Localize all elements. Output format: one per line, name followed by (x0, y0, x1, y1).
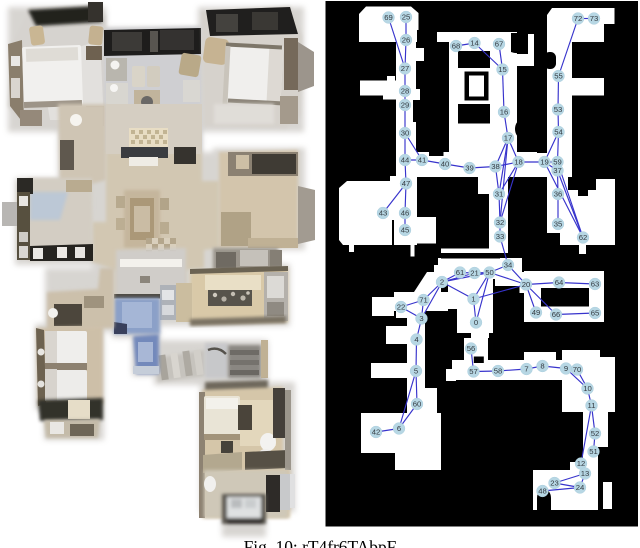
svg-text:1: 1 (471, 294, 475, 303)
svg-text:73: 73 (590, 14, 599, 23)
svg-text:46: 46 (401, 208, 410, 217)
svg-text:24: 24 (576, 483, 585, 492)
svg-text:4: 4 (414, 335, 419, 344)
svg-text:70: 70 (573, 365, 582, 374)
svg-text:60: 60 (413, 399, 422, 408)
svg-text:29: 29 (401, 100, 410, 109)
svg-text:13: 13 (581, 469, 590, 478)
svg-text:0: 0 (474, 318, 478, 327)
svg-text:53: 53 (554, 105, 563, 114)
svg-text:25: 25 (402, 12, 411, 21)
svg-text:66: 66 (552, 310, 561, 319)
svg-text:40: 40 (441, 159, 450, 168)
svg-text:50: 50 (485, 268, 494, 277)
svg-text:10: 10 (583, 384, 592, 393)
svg-text:48: 48 (538, 486, 547, 495)
svg-text:44: 44 (401, 155, 410, 164)
svg-text:72: 72 (574, 14, 583, 23)
svg-text:43: 43 (379, 208, 388, 217)
svg-text:20: 20 (522, 280, 531, 289)
svg-text:45: 45 (401, 225, 410, 234)
svg-text:27: 27 (401, 64, 410, 73)
svg-text:39: 39 (465, 163, 474, 172)
svg-text:22: 22 (397, 302, 406, 311)
svg-text:2: 2 (440, 277, 444, 286)
svg-text:56: 56 (467, 344, 476, 353)
svg-text:61: 61 (456, 268, 465, 277)
svg-text:33: 33 (496, 232, 505, 241)
svg-text:17: 17 (504, 133, 513, 142)
svg-text:47: 47 (402, 179, 411, 188)
svg-text:8: 8 (540, 361, 544, 370)
svg-text:23: 23 (550, 478, 559, 487)
svg-text:71: 71 (419, 295, 428, 304)
svg-text:14: 14 (470, 38, 479, 47)
svg-text:16: 16 (500, 107, 509, 116)
svg-text:38: 38 (491, 162, 500, 171)
svg-text:49: 49 (532, 308, 541, 317)
svg-text:58: 58 (494, 366, 503, 375)
svg-text:36: 36 (554, 189, 563, 198)
svg-text:54: 54 (554, 127, 563, 136)
svg-text:63: 63 (591, 279, 600, 288)
svg-text:28: 28 (401, 86, 410, 95)
svg-text:42: 42 (372, 427, 381, 436)
svg-text:67: 67 (495, 39, 504, 48)
svg-text:9: 9 (564, 364, 568, 373)
svg-text:5: 5 (414, 366, 418, 375)
svg-text:41: 41 (418, 155, 427, 164)
svg-text:18: 18 (514, 157, 523, 166)
svg-text:34: 34 (504, 260, 513, 269)
svg-text:31: 31 (495, 189, 504, 198)
svg-text:51: 51 (589, 447, 598, 456)
svg-text:62: 62 (579, 233, 588, 242)
svg-text:68: 68 (452, 41, 461, 50)
svg-text:65: 65 (591, 308, 600, 317)
svg-text:26: 26 (402, 35, 411, 44)
svg-text:3: 3 (419, 314, 423, 323)
svg-text:7: 7 (524, 364, 528, 373)
svg-text:55: 55 (554, 71, 563, 80)
svg-text:12: 12 (577, 459, 586, 468)
svg-text:15: 15 (498, 65, 507, 74)
svg-text:32: 32 (496, 218, 505, 227)
svg-text:59: 59 (553, 157, 562, 166)
svg-text:11: 11 (588, 401, 596, 410)
svg-text:35: 35 (554, 219, 563, 228)
svg-text:30: 30 (401, 128, 410, 137)
svg-text:69: 69 (384, 13, 393, 22)
svg-text:19: 19 (540, 157, 549, 166)
svg-text:21: 21 (470, 268, 479, 277)
svg-text:57: 57 (469, 367, 478, 376)
svg-text:6: 6 (397, 424, 401, 433)
svg-text:64: 64 (555, 278, 564, 287)
svg-text:52: 52 (591, 429, 600, 438)
